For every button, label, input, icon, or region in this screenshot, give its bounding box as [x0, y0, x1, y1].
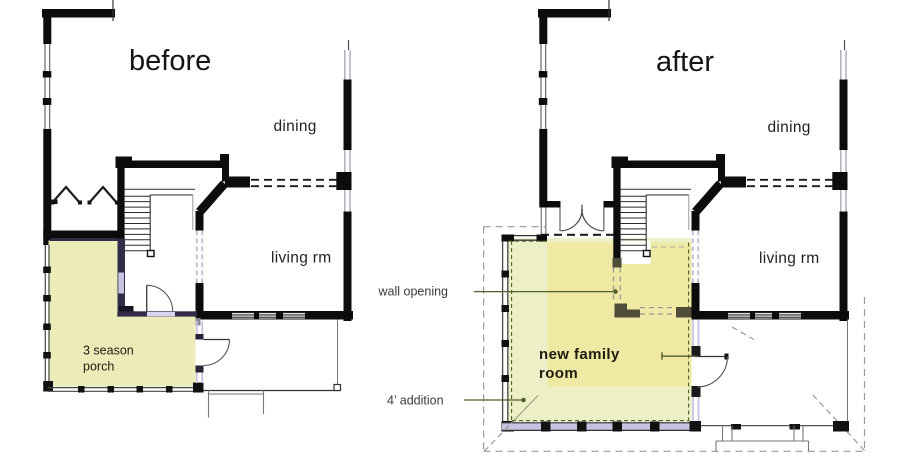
svg-text:4’ addition: 4’ addition: [387, 394, 444, 408]
svg-text:room: room: [539, 365, 578, 382]
svg-text:after: after: [656, 46, 714, 78]
svg-text:living rm: living rm: [271, 250, 331, 267]
svg-text:new family: new family: [539, 346, 620, 363]
svg-text:wall opening: wall opening: [378, 285, 449, 299]
svg-text:before: before: [129, 45, 211, 77]
svg-text:dining: dining: [768, 119, 811, 136]
svg-text:dining: dining: [274, 118, 317, 135]
svg-text:living rm: living rm: [759, 250, 819, 267]
svg-text:3 season: 3 season: [83, 344, 134, 358]
svg-text:porch: porch: [83, 360, 114, 374]
